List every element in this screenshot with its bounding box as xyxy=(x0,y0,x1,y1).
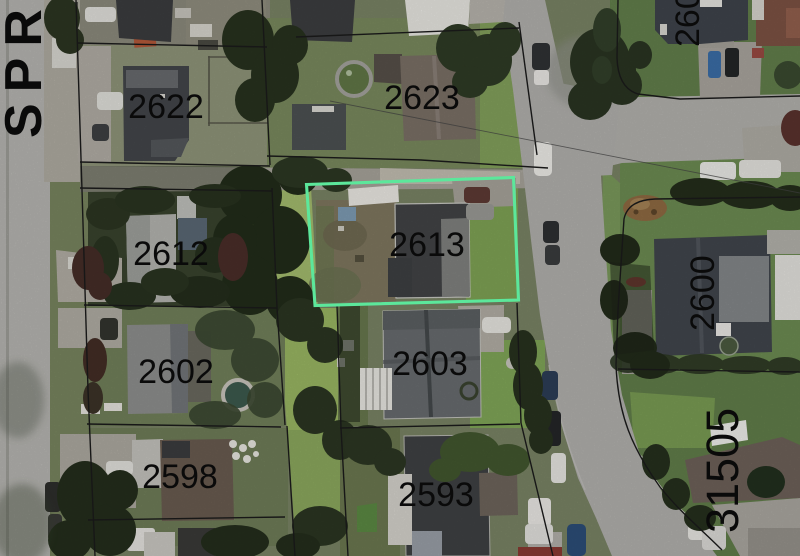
svg-text:2622: 2622 xyxy=(128,88,204,126)
svg-text:SPR: SPR xyxy=(0,0,53,138)
svg-text:2613: 2613 xyxy=(389,226,465,264)
svg-text:31505: 31505 xyxy=(697,408,748,533)
svg-text:2600: 2600 xyxy=(669,0,707,47)
svg-text:2598: 2598 xyxy=(142,458,218,496)
svg-text:2600: 2600 xyxy=(684,255,722,331)
svg-text:2623: 2623 xyxy=(384,79,460,117)
svg-text:2603: 2603 xyxy=(392,345,468,383)
svg-text:2593: 2593 xyxy=(398,476,474,514)
svg-text:2612: 2612 xyxy=(133,235,209,273)
svg-text:2602: 2602 xyxy=(138,353,214,391)
